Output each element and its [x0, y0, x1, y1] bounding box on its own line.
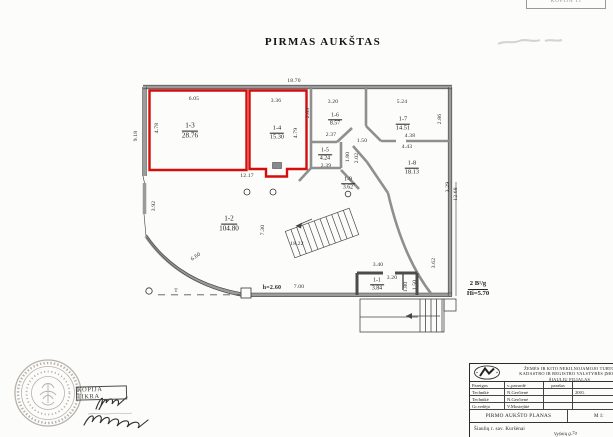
room-label-1-5: 1-5 4.24: [318, 147, 332, 162]
room-label-1-1: 1-1 3.84: [370, 277, 384, 292]
room-label-1-3: 1-3 28.76: [182, 122, 198, 141]
title-block-header: ŽEMĖS IR KITO NEKILNOJAMOJO TURTO KADAST…: [470, 364, 613, 382]
org-line-2: KADASTRO IR REGISTRO VALSTYBĖS ĮMONĖ: [503, 371, 613, 377]
exterior-stair-arrowhead: [406, 313, 412, 319]
dim-overall-top: 18.70: [287, 78, 301, 84]
dim-right-b: 12.68: [453, 187, 459, 201]
page-title: PIRMAS AUKŠTAS: [265, 36, 381, 48]
dim-r6-bottom: 2.37: [326, 132, 337, 138]
kopija-tikra-stamp: KOPIJA TIKRA: [76, 385, 127, 400]
signature-left: [84, 397, 148, 428]
faint-printed-name: [88, 413, 132, 414]
dim-r1-a: 1.80: [403, 282, 409, 293]
column-circles: [146, 189, 351, 294]
dim-r3-bottom: 12.17: [240, 173, 254, 179]
dim-r5-right: 1.80: [345, 152, 351, 163]
col-parasas: parašas: [544, 382, 573, 388]
dim-stair-len: 18.22: [290, 241, 304, 247]
dim-bottom-w: 7.00: [294, 284, 305, 290]
room-label-1-8: 1-8 18.13: [405, 160, 419, 177]
dim-r5-bottom: 2.39: [321, 163, 332, 169]
room-label-1-7: 1-7 14.51: [396, 116, 410, 133]
table-row: Technikė N.Gerčienė 2001.: [470, 389, 613, 396]
t-mark: T: [174, 288, 178, 294]
room-label-1-6: 1-6 8.57: [328, 112, 342, 127]
dim-r4-top: 3.36: [271, 98, 282, 104]
title-block: ŽEMĖS IR KITO NEKILNOJAMOJO TURTO KADAST…: [469, 363, 613, 437]
dim-r4-right: 4.79: [293, 128, 299, 139]
room-label-1-9: 1-9 3.62: [341, 176, 355, 191]
dim-r7-top: 5.24: [397, 99, 408, 105]
table-header-row: Pareigos v.,pavardė parašas: [470, 382, 613, 389]
corner-column: [241, 288, 251, 298]
room-label-1-2: 1-2 104.80: [219, 215, 239, 234]
scanned-floorplan-document: PIRMAS AUKŠTAS 1-3 28.76 1-4 15.30 1-6 8…: [0, 0, 613, 437]
dim-r2-mid: 7.30: [260, 225, 266, 236]
col-pavarde: v.,pavardė: [505, 382, 544, 388]
plan-name: PIRMO AUKŠTO PLANAS: [470, 410, 568, 422]
scale-label: M 1:: [568, 410, 613, 422]
dim-r3-left: 4.78: [154, 123, 160, 134]
kopija-tikra-stamp-top: KOPIJA TI: [526, 0, 606, 9]
dim-r1-right: 3.62: [431, 258, 437, 269]
plan-name-row: PIRMO AUKŠTO PLANAS M 1:: [470, 410, 613, 423]
dim-r1-top: 3.40: [373, 262, 384, 268]
dim-r2-left: 3.92: [151, 201, 157, 212]
dim-r6-left: 2.83: [305, 108, 311, 119]
round-seal: [15, 360, 81, 426]
col-pareigos: Pareigos: [470, 382, 505, 388]
dim-r7-bottom: 4.38: [405, 133, 416, 139]
dim-r1-b: 1.50: [412, 280, 418, 291]
dim-r8-top: 4.43: [402, 144, 413, 150]
title-block-footer: Šiaulių r. sav. Kuršėnai Vyšnių g.7a: [470, 423, 613, 437]
dim-bottom-h: h=2.60: [263, 285, 281, 291]
dim-r1-inner: 3.20: [387, 275, 398, 281]
address-printed: Šiaulių r. sav. Kuršėnai: [474, 427, 525, 432]
interior-staircase: [285, 208, 358, 258]
col-date: [573, 382, 613, 388]
dim-right-a: 3.29: [445, 182, 451, 193]
dim-r7-right: 2.86: [437, 114, 443, 125]
registry-logo-icon: [470, 364, 503, 381]
building-note: 2 B¹/g Hi=5.70: [467, 280, 489, 298]
address-handwritten: Vyšnių g.7a: [554, 431, 577, 437]
faint-pencil-marks: [498, 40, 562, 44]
dim-overall-left: 9.18: [133, 131, 139, 142]
room-label-1-4: 1-4 15.30: [270, 125, 284, 142]
table-row: Gr.vedėja V.Mosiejūtė: [470, 403, 613, 410]
dim-r3-top: 6.05: [189, 96, 200, 102]
door-jamb-stub: [273, 163, 282, 169]
dim-corridor: 2.02: [354, 153, 360, 164]
dim-r6-top: 3.20: [328, 99, 339, 105]
dim-chamfer: 1.50: [357, 138, 368, 144]
table-row: Technikė N.Gerčienė: [470, 396, 613, 403]
